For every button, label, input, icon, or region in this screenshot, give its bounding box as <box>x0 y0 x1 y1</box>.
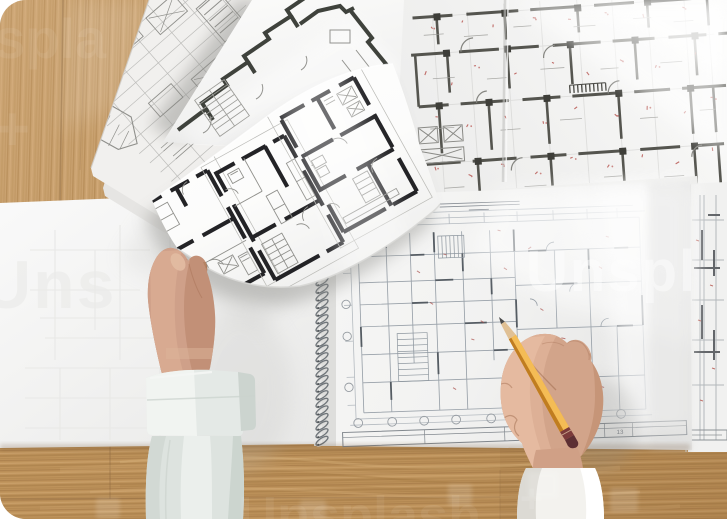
svg-text:+: + <box>520 477 543 519</box>
svg-text:nspla: nspla <box>0 7 107 70</box>
svg-text:Unsplash: Unsplash <box>238 486 481 519</box>
svg-text:+: + <box>0 95 30 164</box>
svg-text:Unspl: Unspl <box>526 239 697 304</box>
svg-text:Uns: Uns <box>0 247 116 323</box>
